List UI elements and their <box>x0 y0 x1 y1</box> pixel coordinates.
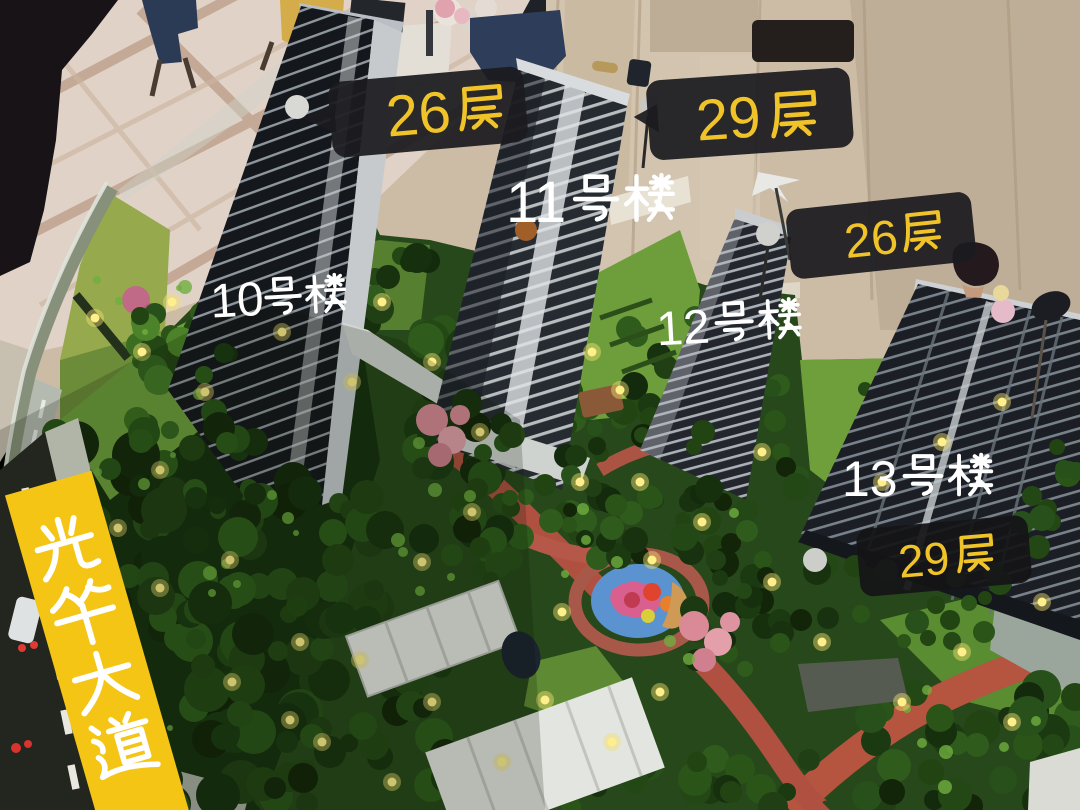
svg-text:26: 26 <box>383 79 453 149</box>
svg-text:26: 26 <box>842 211 901 269</box>
svg-text:12: 12 <box>655 301 711 357</box>
svg-text:29: 29 <box>694 84 763 153</box>
svg-text:11: 11 <box>506 170 566 235</box>
svg-text:13: 13 <box>842 451 898 507</box>
svg-text:10: 10 <box>209 273 265 329</box>
svg-text:29: 29 <box>896 532 952 588</box>
